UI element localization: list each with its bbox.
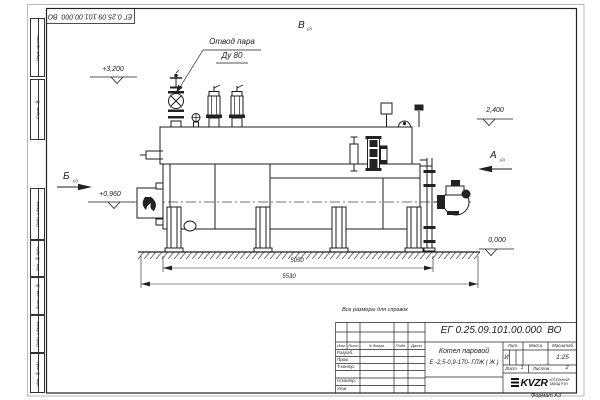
safety-valve (206, 85, 222, 127)
drawing-sheet: ЕГ 0.25.09.101.00.000 ВО Перв. примен. С… (0, 0, 600, 400)
company-logo: KVZR КОТЕЛЬНЫЙ ЗАВОД РЭП (505, 374, 575, 391)
burner-unit (434, 180, 471, 215)
drum-fitting (192, 114, 200, 128)
col-izm: Изм (337, 344, 344, 348)
scale-value: 1:25 (556, 355, 569, 362)
dimension-label-5050: 5050 (290, 258, 303, 264)
dimension-label-5530: 5530 (282, 274, 295, 280)
lit-value: И (504, 355, 508, 361)
col-date: Дата (411, 344, 422, 348)
level-column (366, 136, 388, 171)
downcomer-pipe (420, 158, 436, 251)
col-doc: N докум. (369, 344, 385, 348)
elevation-label-right: 2,400 (486, 107, 504, 114)
margin-stamp-podp1: Подп. и дата (30, 188, 45, 240)
margin-stamp-label: Справ. № (31, 80, 44, 139)
sheet-label: Лист (505, 367, 517, 372)
margin-stamp-inv-podl: Инв. № подл. (30, 353, 45, 393)
col-podp: Подп. (396, 344, 407, 348)
sign-row-utv: Утв. (337, 387, 347, 392)
steam-outlet-dn: Ду 80 (222, 52, 243, 60)
manhole (184, 221, 196, 231)
sign-row-prov: Пров. (337, 358, 349, 363)
product-name-line1: Котел паровой (439, 348, 489, 355)
safety-valve (229, 85, 245, 127)
scale-label: Масштаб (552, 344, 573, 349)
steam-outlet-leader (176, 50, 261, 93)
steam-outlet-label: Отвод пара (209, 38, 255, 46)
margin-stamp-podp2: Подп. и дата (30, 315, 45, 353)
margin-stamp-vzam: Взам. инв. № (30, 277, 45, 315)
elevation-label-top: +3,200 (102, 66, 124, 73)
support-leg (405, 207, 423, 252)
product-name-line2: Е -2,5-0,9-170- ГЛЖ ( Ж ) (429, 360, 498, 366)
logo-text: KVZR (521, 377, 548, 389)
mass-label: Масса (529, 344, 542, 349)
view-marker-a: А (490, 151, 497, 161)
margin-stamp-inv-dubl: Инв. № дубл. (30, 240, 45, 277)
support-leg (254, 207, 272, 252)
burner-box (137, 183, 163, 225)
dimension-lines (141, 256, 478, 288)
reference-note: Все размеры для справок (342, 308, 408, 314)
boiler-drawing (57, 50, 514, 288)
boiler-body (163, 164, 420, 229)
margin-stamp-label: Подп. и дата (31, 189, 44, 239)
view-marker-a-ref: (2) (500, 158, 505, 162)
support-leg (165, 207, 183, 252)
margin-stamp-perv-primen: Перв. примен. (30, 18, 45, 77)
drawing-linework (0, 0, 600, 400)
logo-subtext-line2: ЗАВОД РЭП (550, 383, 570, 387)
view-marker-v-ref: (2) (307, 27, 312, 31)
col-list: Лист (348, 344, 358, 348)
sign-row-razrab: Разраб. (337, 351, 353, 356)
level-sensor (381, 103, 392, 127)
view-marker-v: В (298, 21, 305, 31)
ground-hatch (138, 252, 480, 259)
logo-bars-icon (511, 378, 519, 387)
corner-designation: ЕГ 0.25.09.101.00.000 ВО (48, 13, 133, 20)
signal-lamp (399, 121, 411, 127)
support-leg (330, 207, 348, 252)
steam-outlet-valve (168, 70, 184, 127)
elevation-label-burner: +0,960 (99, 191, 121, 198)
sheets-value: 2 (565, 366, 568, 372)
format-note: Формат А3 (531, 394, 561, 400)
lit-label: Лит. (508, 344, 519, 349)
logo-subtext: КОТЕЛЬНЫЙ ЗАВОД РЭП (550, 379, 570, 387)
sheets-label: Листов (533, 367, 549, 372)
section-marker-b: Б (63, 172, 70, 182)
sheet-value: 1 (520, 366, 523, 372)
water-gauge-glass (350, 137, 358, 171)
margin-stamp-label: Перв. примен. (31, 19, 44, 76)
margin-stamp-label: Инв. № дубл. (31, 241, 44, 276)
sheet-frame (28, 5, 585, 397)
margin-stamp-label: Подп. и дата (31, 316, 44, 352)
margin-stamp-label: Инв. № подл. (31, 354, 44, 392)
elevation-label-ground: 0,000 (488, 237, 506, 244)
vent-pipe (415, 105, 424, 128)
sign-row-nkontr: Н.контр. (337, 379, 356, 384)
margin-stamp-sprav: Справ. № (30, 79, 45, 140)
section-marker-b-ref: (2) (73, 179, 78, 183)
margin-stamp-label: Взам. инв. № (31, 278, 44, 314)
sign-row-tkontr: Т.контр. (337, 365, 355, 370)
title-designation: ЕГ 0.25.09.101.00.000 ВО (441, 326, 562, 336)
